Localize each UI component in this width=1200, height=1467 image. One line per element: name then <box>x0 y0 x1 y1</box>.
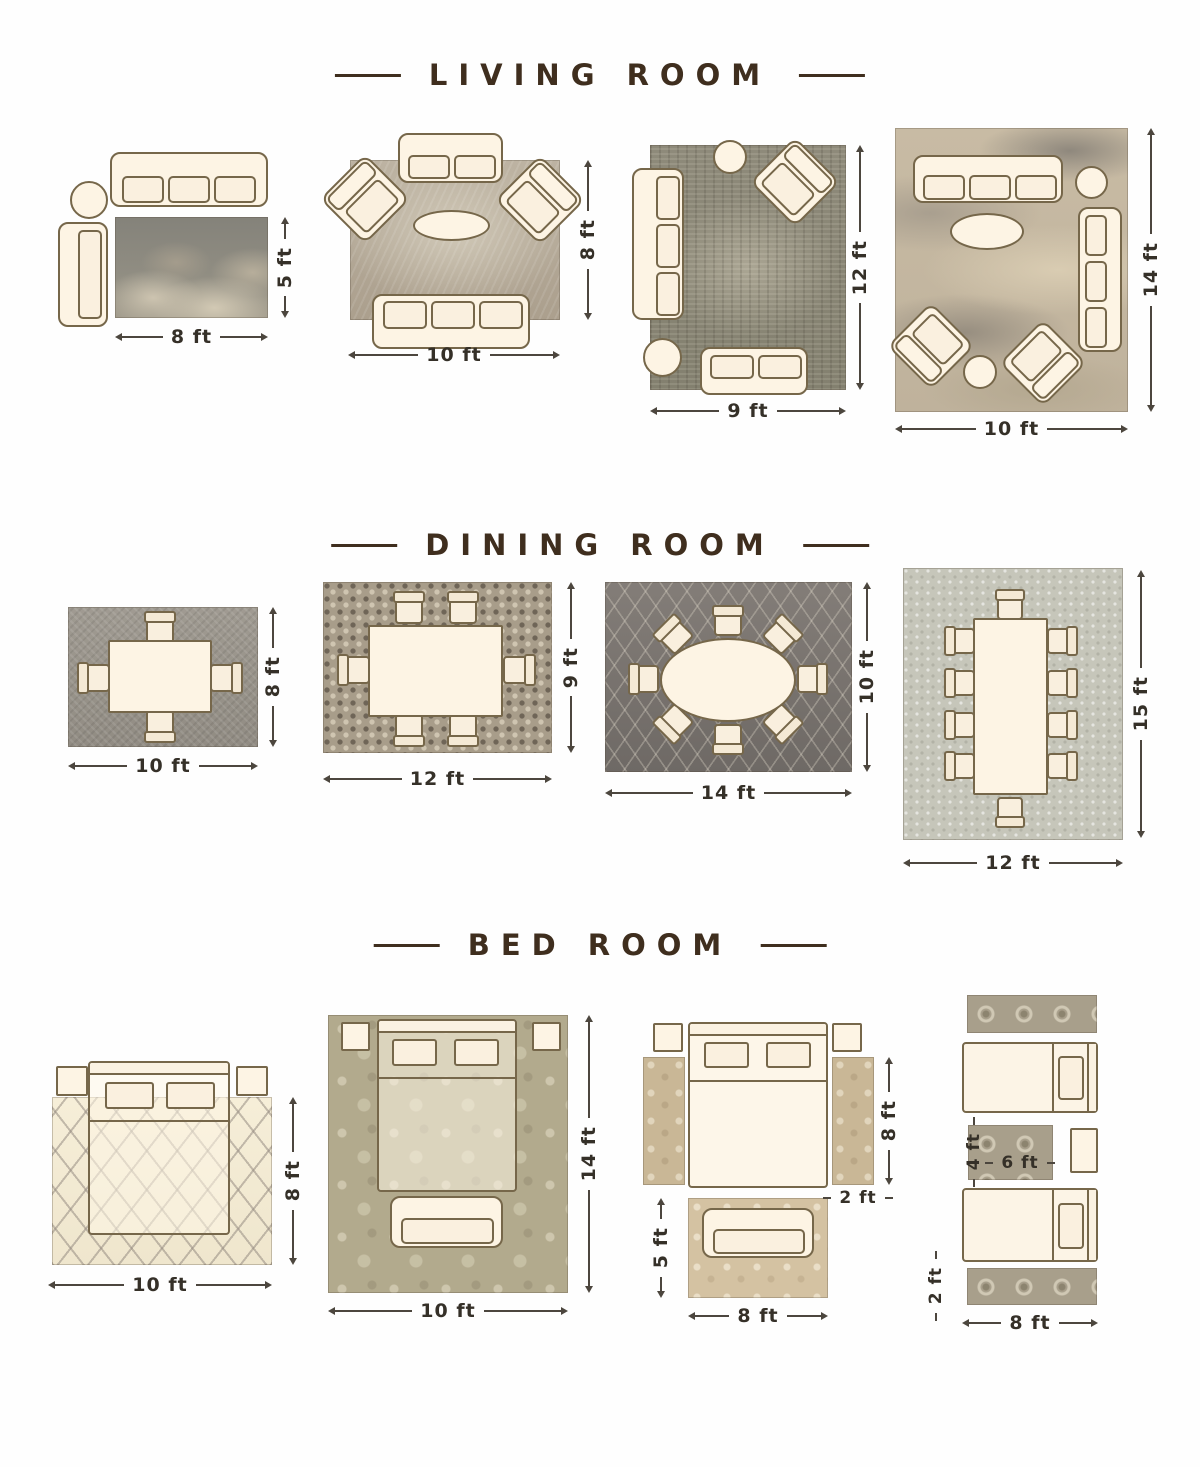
loveseat <box>398 133 503 183</box>
sheet-line <box>379 1077 515 1079</box>
height-dimension: 8 ft <box>262 607 284 747</box>
cushion <box>656 176 680 220</box>
runner-rug <box>643 1057 685 1185</box>
dining-chair <box>338 656 370 684</box>
width-dimension: 10 ft <box>68 755 258 777</box>
dining-chair <box>78 664 110 692</box>
width-dimension: 10 ft <box>328 1300 568 1322</box>
dining-chair <box>945 628 975 654</box>
height-dimension: 8 ft <box>577 160 599 320</box>
front-rug-width-dimension: 8 ft <box>688 1305 828 1327</box>
title-dash-left <box>331 544 397 547</box>
cushion <box>713 1229 805 1254</box>
cushion <box>656 272 680 316</box>
height-dimension: 15 ft <box>1130 570 1152 838</box>
width-dimension: 8 ft <box>115 326 268 348</box>
cushion <box>214 176 256 203</box>
section-heading: LIVING ROOM <box>429 58 771 92</box>
dining-chair <box>449 592 477 624</box>
cushion <box>78 230 102 319</box>
dining-chair <box>1047 670 1077 696</box>
dining-table <box>660 638 796 722</box>
runner-width-dimension: 2 ft <box>926 1260 946 1312</box>
dining-chair <box>146 710 174 742</box>
bed <box>377 1019 517 1192</box>
cushion <box>454 155 496 179</box>
sheet-line <box>690 1080 826 1082</box>
headboard <box>1087 1044 1096 1111</box>
living-room-title: LIVING ROOM <box>335 58 865 92</box>
chaise-sofa <box>58 222 108 327</box>
coffee-table <box>413 210 490 241</box>
pillow <box>454 1039 499 1066</box>
width-dimension: 9 ft <box>650 400 846 422</box>
sofa <box>110 152 268 207</box>
pillow <box>105 1082 154 1109</box>
dining-chair <box>395 714 423 746</box>
twin-bed <box>962 1188 1098 1262</box>
bed <box>688 1022 828 1188</box>
nightstand <box>532 1022 561 1051</box>
height-dimension: 8 ft <box>282 1097 304 1265</box>
cushion <box>710 355 754 379</box>
side-table <box>963 355 997 389</box>
height-dimension: 12 ft <box>849 145 871 390</box>
pillow <box>1058 1056 1084 1100</box>
cushion <box>923 175 965 200</box>
runner-rug <box>832 1057 874 1185</box>
dining-chair <box>945 753 975 779</box>
runner-length-dimension: 8 ft <box>962 1312 1098 1334</box>
bench <box>390 1196 503 1248</box>
dining-chair <box>449 714 477 746</box>
height-dimension: 14 ft <box>578 1015 600 1293</box>
pillow <box>392 1039 437 1066</box>
cushion <box>168 176 210 203</box>
pillow <box>766 1042 811 1068</box>
dining-chair <box>797 665 827 693</box>
cushion <box>122 176 164 203</box>
title-dash-left <box>374 944 440 947</box>
loveseat <box>700 347 808 395</box>
dining-chair <box>945 670 975 696</box>
cushion <box>408 155 450 179</box>
cushion <box>656 224 680 268</box>
width-dimension: 10 ft <box>895 418 1128 440</box>
runner-rug <box>967 1268 1097 1305</box>
sofa <box>372 294 530 349</box>
side-table <box>1075 166 1108 199</box>
cushion <box>383 301 427 329</box>
nightstand <box>236 1066 268 1096</box>
nightstand <box>341 1022 370 1051</box>
pillow <box>704 1042 749 1068</box>
nightstand <box>653 1023 683 1052</box>
dining-table <box>368 625 503 717</box>
dining-chair <box>395 592 423 624</box>
nightstand <box>56 1066 88 1096</box>
dining-chair <box>714 724 742 754</box>
dining-table <box>108 640 212 713</box>
nightstand <box>1070 1128 1098 1173</box>
dining-chair <box>629 665 659 693</box>
sofa <box>913 155 1063 203</box>
between-rug-height-dimension: 4 ft <box>964 1120 984 1184</box>
sofa <box>1078 207 1122 352</box>
section-heading: BED ROOM <box>468 928 733 962</box>
dining-chair <box>1047 753 1077 779</box>
dining-table <box>973 618 1048 795</box>
bench <box>702 1208 814 1258</box>
between-rug-width-dimension: 6 ft <box>981 1153 1059 1173</box>
width-dimension: 10 ft <box>348 344 560 366</box>
title-dash-right <box>799 74 865 77</box>
section-heading: DINING ROOM <box>425 528 775 562</box>
side-table <box>643 338 682 377</box>
title-dash-right <box>760 944 826 947</box>
side-table <box>70 181 108 219</box>
sheet-line <box>1052 1190 1054 1260</box>
rug-size-guide: LIVING ROOM 8 ft 5 ft <box>0 0 1200 1467</box>
runner-width-dimension: 2 ft <box>828 1188 888 1208</box>
headboard <box>379 1021 515 1033</box>
cushion <box>479 301 523 329</box>
width-dimension: 12 ft <box>323 768 552 790</box>
sofa <box>632 168 684 320</box>
height-dimension: 5 ft <box>274 217 296 318</box>
nightstand <box>832 1023 862 1052</box>
cushion <box>1085 307 1107 348</box>
runner-height-dimension: 8 ft <box>878 1057 900 1185</box>
front-rug-height-dimension: 5 ft <box>650 1198 672 1298</box>
cushion <box>1015 175 1057 200</box>
width-dimension: 14 ft <box>605 782 852 804</box>
cushion <box>1085 215 1107 256</box>
width-dimension: 10 ft <box>48 1274 272 1296</box>
dining-chair <box>997 590 1023 620</box>
width-dimension: 12 ft <box>903 852 1123 874</box>
cushion <box>969 175 1011 200</box>
twin-bed <box>962 1042 1098 1113</box>
cushion <box>758 355 802 379</box>
dining-chair <box>503 656 535 684</box>
dining-chair <box>714 606 742 636</box>
coffee-table <box>950 213 1024 250</box>
bed-room-title: BED ROOM <box>374 928 827 962</box>
title-dash-left <box>335 74 401 77</box>
pillow <box>1058 1203 1084 1249</box>
rug-8x5 <box>115 217 268 318</box>
dining-room-title: DINING ROOM <box>331 528 869 562</box>
sheet-line <box>1052 1044 1054 1111</box>
headboard <box>690 1024 826 1036</box>
headboard <box>90 1063 228 1075</box>
dining-chair <box>1047 712 1077 738</box>
headboard <box>1087 1190 1096 1260</box>
dining-chair <box>997 797 1023 827</box>
cushion <box>1085 261 1107 302</box>
bed <box>88 1061 230 1235</box>
runner-rug <box>967 995 1097 1033</box>
dining-chair <box>945 712 975 738</box>
height-dimension: 14 ft <box>1140 128 1162 412</box>
side-table <box>713 140 747 174</box>
title-dash-right <box>803 544 869 547</box>
cushion <box>431 301 475 329</box>
dining-chair <box>210 664 242 692</box>
height-dimension: 10 ft <box>856 582 878 772</box>
dining-chair <box>1047 628 1077 654</box>
cushion <box>401 1218 494 1244</box>
height-dimension: 9 ft <box>560 582 582 753</box>
sheet-line <box>90 1120 228 1122</box>
pillow <box>166 1082 215 1109</box>
